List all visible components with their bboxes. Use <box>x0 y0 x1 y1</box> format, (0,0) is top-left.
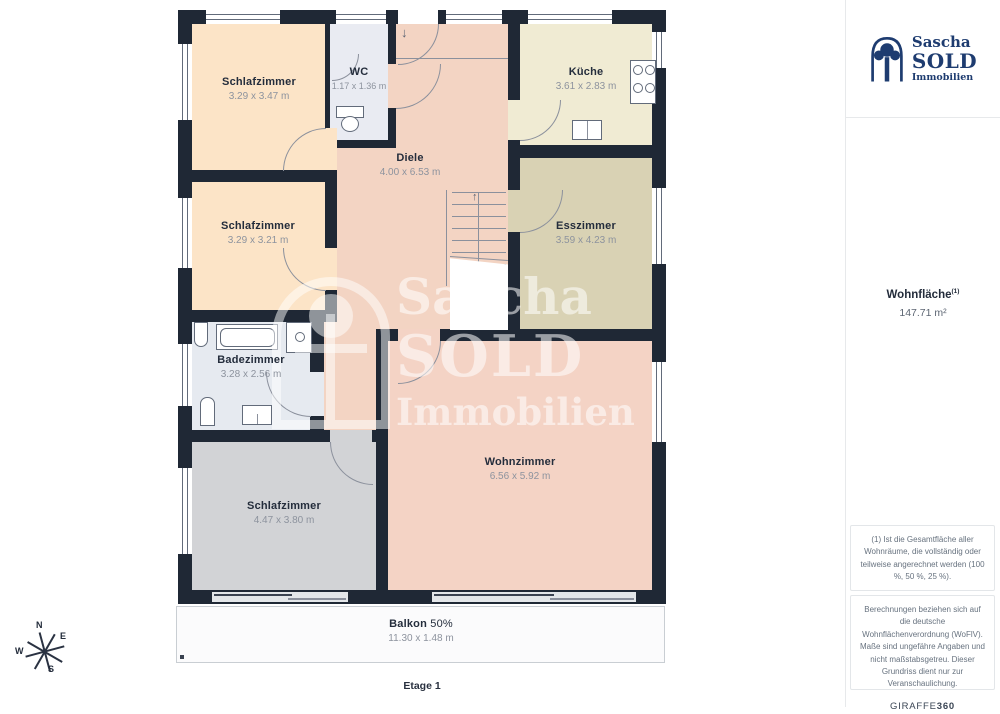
shower-icon <box>286 322 312 353</box>
area-label-text: Wohnfläche <box>887 289 952 301</box>
stairs-center-line <box>478 193 479 265</box>
window <box>206 10 280 24</box>
door-opening <box>330 430 372 442</box>
stove-burner-icon <box>645 83 655 93</box>
logo-box: Sascha SOLD Immobilien <box>846 0 1000 118</box>
brand-name: GIRAFFE <box>890 701 937 712</box>
room-dining-floor <box>520 158 652 329</box>
hall-step-line <box>396 58 508 59</box>
bidet-icon <box>200 397 215 426</box>
sliding-door-line <box>214 594 292 596</box>
stove-burner-icon <box>645 65 655 75</box>
door-opening <box>508 190 520 232</box>
footnote-box-2: Berechnungen beziehen sich auf die deuts… <box>850 595 995 690</box>
sink-divider-line <box>587 121 588 139</box>
door-opening <box>508 100 520 140</box>
compass-north-label: N <box>36 620 43 630</box>
compass-west-label: W <box>15 646 24 656</box>
compass: N E W S <box>12 618 78 684</box>
sidebar: Sascha SOLD Immobilien Wohnfläche(1) 147… <box>845 0 1000 707</box>
balcony-corner-mark <box>180 655 184 659</box>
sliding-door <box>212 592 348 602</box>
room-hall-corridor-floor <box>324 322 376 430</box>
kitchen-sink-icon <box>572 120 602 140</box>
window <box>528 10 612 24</box>
room-hall-floor-left <box>337 148 396 329</box>
sliding-door-line <box>288 598 346 600</box>
shower-drain-icon <box>295 332 305 342</box>
logo-icon <box>869 34 905 84</box>
compass-south-label: S <box>48 664 54 674</box>
door-opening <box>398 329 440 341</box>
window <box>446 10 502 24</box>
entrance-opening <box>398 10 438 24</box>
sliding-door <box>432 592 636 602</box>
stairs-stringer <box>446 190 447 286</box>
sliding-door-line <box>434 594 554 596</box>
toilet-icon <box>194 322 208 347</box>
window <box>178 44 192 120</box>
logo-line-3: Immobilien <box>912 73 977 83</box>
bathtub-icon <box>216 324 278 350</box>
room-living-floor <box>388 341 652 590</box>
stairs <box>452 192 506 265</box>
door-opening <box>388 64 396 108</box>
balcony-area <box>176 606 665 663</box>
door-opening <box>325 248 337 290</box>
sliding-door-line <box>550 598 634 600</box>
window <box>178 198 192 268</box>
stove-burner-icon <box>633 83 643 93</box>
logo-text: Sascha SOLD Immobilien <box>912 35 977 83</box>
disclaimer-text: Berechnungen beziehen sich auf die deuts… <box>860 604 985 691</box>
sink-divider-line <box>257 414 258 424</box>
living-area-label: Wohnfläche(1) <box>846 288 1000 301</box>
window <box>178 468 192 554</box>
bath-sink-icon <box>242 405 272 425</box>
window <box>336 10 386 24</box>
window <box>652 188 666 264</box>
door-opening <box>310 372 324 416</box>
bathtub-inner <box>220 328 275 347</box>
toilet-bowl-icon <box>341 116 359 132</box>
door-opening <box>325 128 337 170</box>
living-area-box: Wohnfläche(1) 147.71 m² <box>846 288 1000 319</box>
floor-label: Etage 1 <box>347 680 497 692</box>
area-footnote-ref: (1) <box>952 288 960 295</box>
brand-suffix: 360 <box>937 701 955 712</box>
compass-east-label: E <box>60 631 66 641</box>
logo-line-2: SOLD <box>912 51 977 71</box>
window <box>178 344 192 406</box>
room-bedroom-2-floor <box>192 182 325 310</box>
stairs-void <box>450 252 508 330</box>
stairs-up-arrow-icon: ↑ <box>472 192 478 203</box>
window <box>652 362 666 442</box>
entrance-arrow-icon: ↓ <box>401 26 408 39</box>
living-area-value: 147.71 m² <box>846 307 1000 319</box>
room-wc-floor <box>330 24 388 140</box>
footnote-box-1: (1) Ist die Gesamtfläche aller Wohnräume… <box>850 525 995 591</box>
logo-line-1: Sascha <box>912 35 977 50</box>
stove-burner-icon <box>633 65 643 75</box>
compass-center <box>43 649 47 653</box>
